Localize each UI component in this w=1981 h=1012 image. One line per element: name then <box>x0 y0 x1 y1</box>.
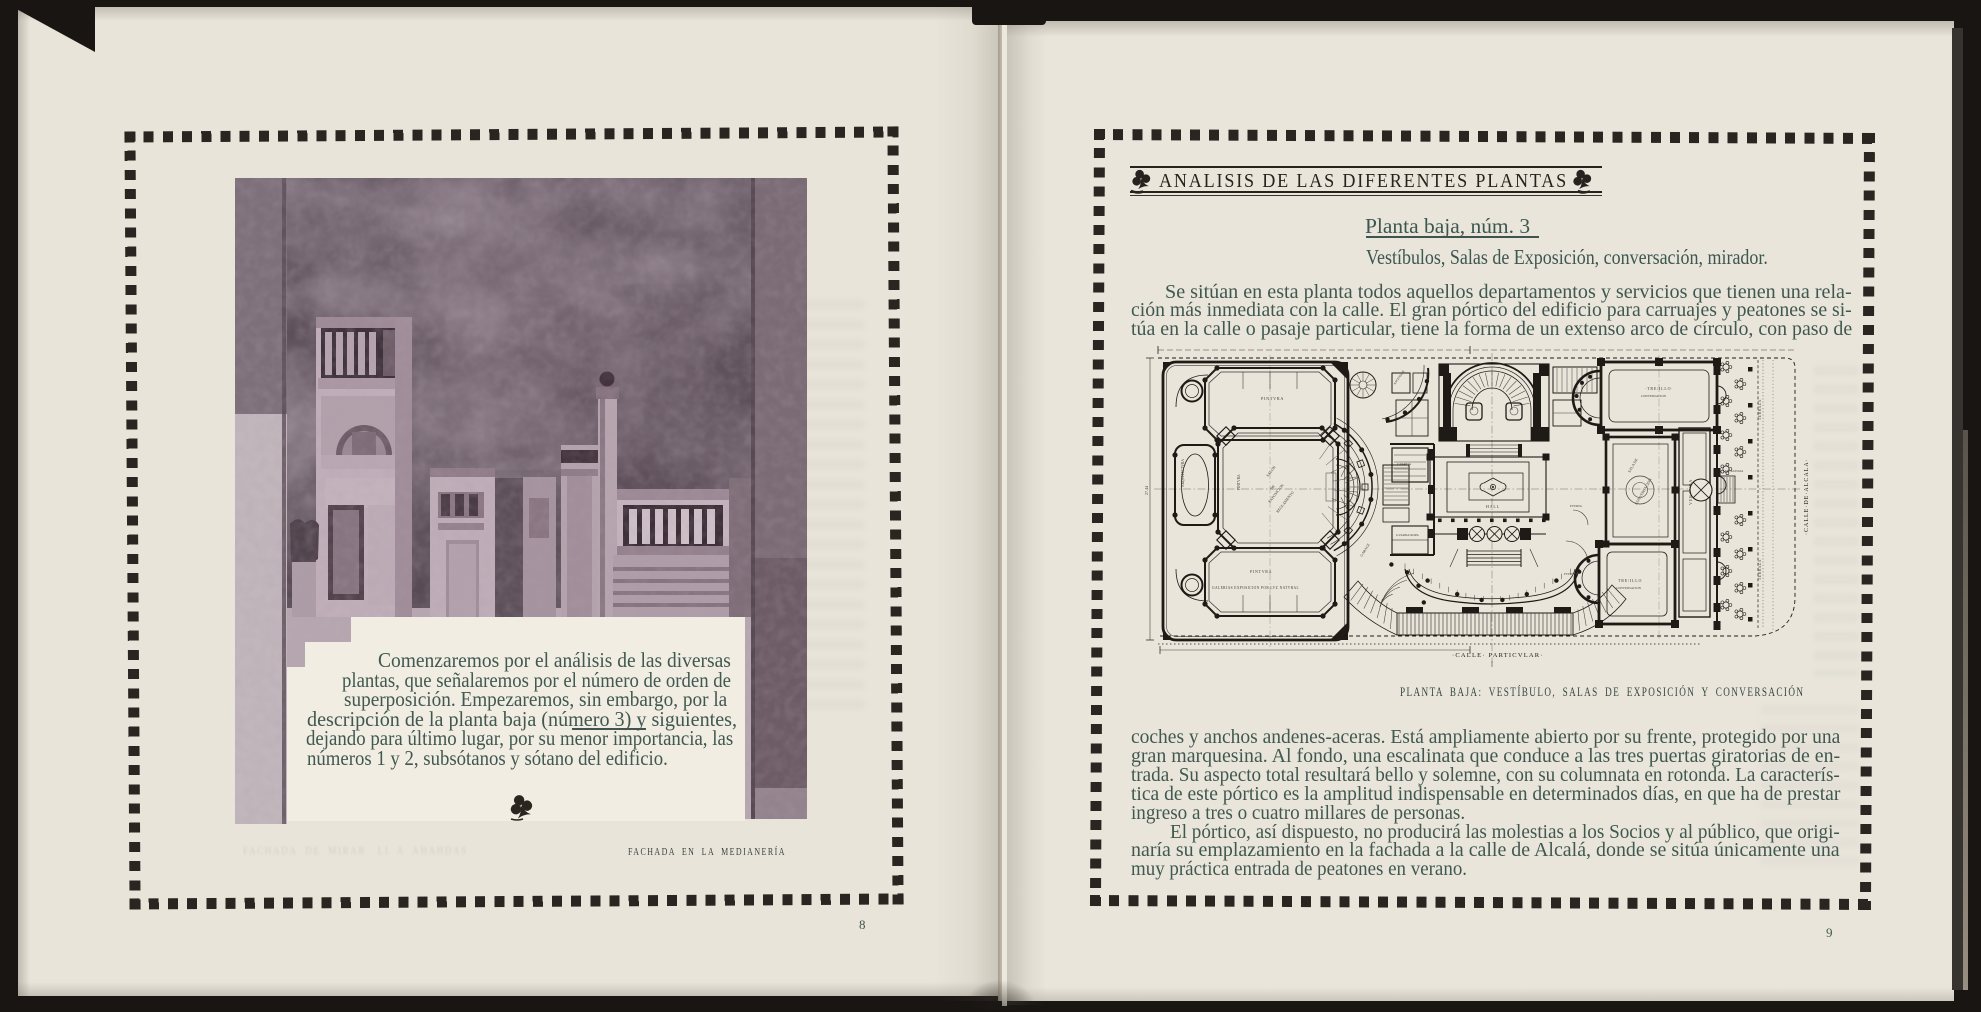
svg-text:HALL: HALL <box>1486 504 1500 509</box>
svg-text:TERRAZA: TERRAZA <box>1758 399 1762 420</box>
svg-text:GVARDA ROPA: GVARDA ROPA <box>1396 533 1419 537</box>
svg-text:ESCALINATA: ESCALINATA <box>1725 469 1744 473</box>
svg-text:CONVERSACION: CONVERSACION <box>1641 394 1667 398</box>
svg-text:ASCENSOR: ASCENSOR <box>1393 369 1406 386</box>
svg-text:ARQVITECTVRA: ARQVITECTVRA <box>1181 459 1185 487</box>
svg-text:CONVERSACION: CONVERSACION <box>1634 478 1652 506</box>
svg-text:27.44: 27.44 <box>1144 486 1149 495</box>
svg-text:DE: DE <box>1270 484 1277 491</box>
svg-text:·CALLE· PARTICVLAR·: ·CALLE· PARTICVLAR· <box>1452 652 1544 659</box>
svg-text:TERRAZA: TERRAZA <box>1758 559 1762 580</box>
svg-text:PINTVRA: PINTVRA <box>1237 474 1241 490</box>
svg-text:·CALLE·DE·ALCALA·: ·CALLE·DE·ALCALA· <box>1804 458 1810 535</box>
svg-text:PINTVRA: PINTVRA <box>1261 396 1284 401</box>
svg-text:PINTVRA: PINTVRA <box>1250 569 1272 574</box>
svg-text:GALERIAS EXPOSICION POR LVZ NA: GALERIAS EXPOSICION POR LVZ NATVRAL <box>1212 586 1299 590</box>
svg-text:·TRE/ILLO·: ·TRE/ILLO· <box>1645 386 1673 391</box>
svg-text:PVERTA: PVERTA <box>1570 504 1583 508</box>
svg-text:SALA DE: SALA DE <box>1627 457 1639 473</box>
svg-text:TRE/ILLO: TRE/ILLO <box>1618 578 1642 583</box>
svg-text:GARAGE: GARAGE <box>1359 542 1371 558</box>
svg-text:SALON: SALON <box>1266 465 1277 478</box>
svg-text:CONVERSACION: CONVERSACION <box>1616 586 1642 590</box>
svg-text:REGLAMENTO: REGLAMENTO <box>1276 490 1295 513</box>
